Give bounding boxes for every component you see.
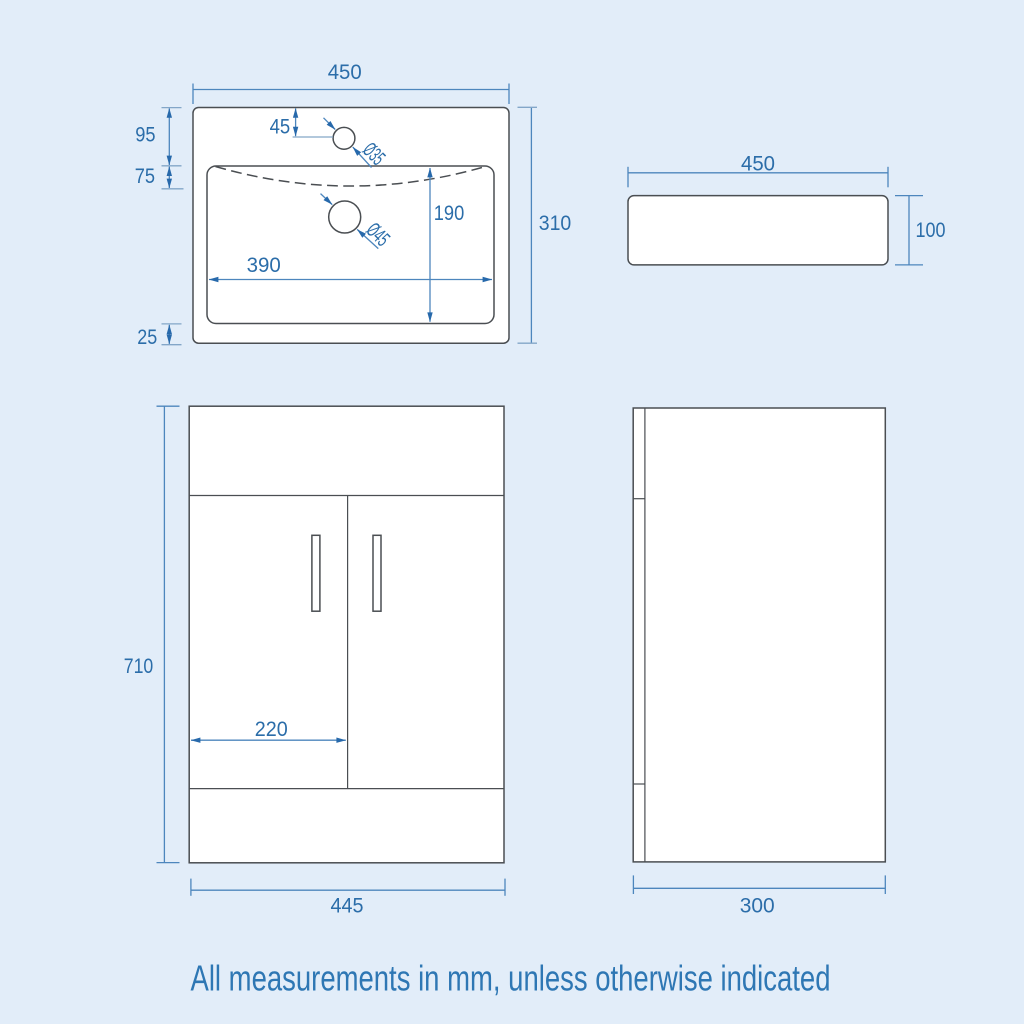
- svg-text:390: 390: [247, 254, 281, 277]
- svg-text:All measurements in mm, unless: All measurements in mm, unless otherwise…: [191, 958, 831, 999]
- svg-text:220: 220: [255, 718, 288, 741]
- svg-text:75: 75: [135, 165, 155, 188]
- svg-text:450: 450: [328, 61, 362, 84]
- svg-text:710: 710: [124, 655, 154, 678]
- svg-text:450: 450: [741, 152, 775, 175]
- svg-text:300: 300: [740, 894, 775, 917]
- svg-text:190: 190: [434, 202, 465, 225]
- svg-text:310: 310: [539, 212, 572, 235]
- svg-text:95: 95: [135, 124, 155, 147]
- svg-text:445: 445: [331, 894, 364, 917]
- svg-text:25: 25: [137, 326, 157, 349]
- svg-text:45: 45: [270, 115, 291, 138]
- svg-text:100: 100: [916, 219, 946, 242]
